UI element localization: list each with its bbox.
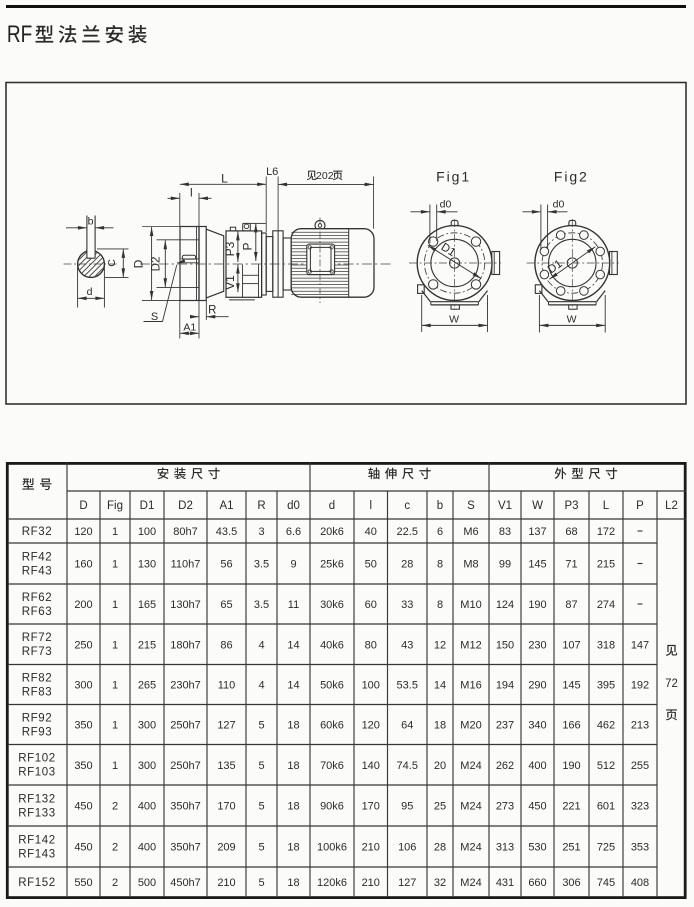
svg-text:M20: M20 xyxy=(460,720,481,732)
svg-text:S: S xyxy=(151,311,158,323)
svg-text:R: R xyxy=(208,304,216,316)
svg-text:M10: M10 xyxy=(460,599,481,611)
svg-text:90k6: 90k6 xyxy=(320,801,344,813)
svg-text:RF72: RF72 xyxy=(22,632,53,644)
svg-text:Fig1: Fig1 xyxy=(436,168,471,184)
svg-text:230: 230 xyxy=(528,639,546,651)
svg-text:400: 400 xyxy=(138,842,156,854)
svg-text:512: 512 xyxy=(597,760,615,772)
svg-text:M24: M24 xyxy=(460,877,481,889)
svg-text:166: 166 xyxy=(562,720,580,732)
svg-text:9: 9 xyxy=(290,559,296,571)
svg-text:RF93: RF93 xyxy=(22,726,53,738)
svg-text:25: 25 xyxy=(434,801,446,813)
svg-text:18: 18 xyxy=(287,842,299,854)
svg-text:250h7: 250h7 xyxy=(170,720,201,732)
svg-text:350h7: 350h7 xyxy=(170,801,201,813)
svg-text:80: 80 xyxy=(365,639,377,651)
svg-text:306: 306 xyxy=(562,877,580,889)
svg-text:230h7: 230h7 xyxy=(170,680,201,692)
svg-text:1: 1 xyxy=(112,526,118,538)
svg-text:500: 500 xyxy=(138,877,156,889)
svg-text:251: 251 xyxy=(562,842,580,854)
svg-text:11: 11 xyxy=(288,599,299,611)
svg-text:5: 5 xyxy=(258,720,264,732)
svg-text:RF: RF xyxy=(7,21,32,48)
svg-text:202: 202 xyxy=(316,170,334,182)
svg-text:RF73: RF73 xyxy=(22,646,53,658)
svg-text:265: 265 xyxy=(138,680,156,692)
svg-text:A1: A1 xyxy=(183,321,196,333)
svg-text:431: 431 xyxy=(496,877,514,889)
svg-text:450: 450 xyxy=(528,801,546,813)
svg-text:110h7: 110h7 xyxy=(171,559,201,571)
svg-text:A1: A1 xyxy=(219,500,233,512)
svg-text:64: 64 xyxy=(401,720,413,732)
svg-text:83: 83 xyxy=(499,526,511,538)
svg-text:6.6: 6.6 xyxy=(286,526,301,538)
svg-text:147: 147 xyxy=(631,639,649,651)
svg-text:145: 145 xyxy=(562,680,580,692)
svg-text:530: 530 xyxy=(528,842,546,854)
svg-text:95: 95 xyxy=(401,801,413,813)
svg-text:RF102: RF102 xyxy=(18,753,56,765)
svg-text:c: c xyxy=(404,500,410,512)
svg-text:RF152: RF152 xyxy=(18,877,56,889)
svg-text:D: D xyxy=(79,500,87,512)
svg-text:250: 250 xyxy=(74,639,92,651)
svg-text:160: 160 xyxy=(74,559,92,571)
svg-text:W: W xyxy=(532,500,543,512)
svg-text:32: 32 xyxy=(434,877,446,889)
svg-text:Fig2: Fig2 xyxy=(554,168,589,184)
svg-text:56: 56 xyxy=(220,559,232,571)
svg-text:165: 165 xyxy=(138,599,156,611)
svg-text:80h7: 80h7 xyxy=(173,526,197,538)
svg-text:20: 20 xyxy=(434,760,446,772)
svg-text:12: 12 xyxy=(434,639,446,651)
svg-text:M24: M24 xyxy=(460,760,481,772)
svg-text:110: 110 xyxy=(218,680,236,692)
svg-text:2: 2 xyxy=(112,877,118,889)
svg-text:190: 190 xyxy=(528,599,546,611)
svg-text:660: 660 xyxy=(528,877,546,889)
svg-text:127: 127 xyxy=(398,877,416,889)
svg-text:106: 106 xyxy=(398,842,416,854)
svg-text:18: 18 xyxy=(287,720,299,732)
svg-text:RF32: RF32 xyxy=(22,526,53,538)
svg-text:33: 33 xyxy=(401,599,413,611)
svg-text:l: l xyxy=(190,185,193,199)
svg-text:450h7: 450h7 xyxy=(170,877,201,889)
svg-text:d0: d0 xyxy=(287,500,300,512)
svg-text:RF42: RF42 xyxy=(22,551,53,563)
svg-text:1: 1 xyxy=(112,720,118,732)
svg-text:3.5: 3.5 xyxy=(254,599,269,611)
svg-text:RF103: RF103 xyxy=(18,767,56,779)
svg-text:210: 210 xyxy=(217,877,235,889)
svg-text:550: 550 xyxy=(74,877,92,889)
svg-text:30k6: 30k6 xyxy=(320,599,344,611)
svg-text:5: 5 xyxy=(258,760,264,772)
svg-text:209: 209 xyxy=(217,842,235,854)
svg-text:71: 71 xyxy=(565,559,577,571)
svg-text:192: 192 xyxy=(631,680,649,692)
svg-text:25k6: 25k6 xyxy=(320,559,344,571)
svg-text:RF142: RF142 xyxy=(18,834,56,846)
svg-text:273: 273 xyxy=(496,801,514,813)
svg-text:M24: M24 xyxy=(460,801,481,813)
svg-text:P: P xyxy=(240,242,254,250)
svg-text:262: 262 xyxy=(496,760,514,772)
svg-text:V1: V1 xyxy=(498,500,512,512)
svg-text:72: 72 xyxy=(665,678,678,690)
svg-text:b: b xyxy=(88,216,94,228)
svg-text:172: 172 xyxy=(597,526,615,538)
svg-text:400: 400 xyxy=(528,760,546,772)
svg-text:68: 68 xyxy=(565,526,577,538)
svg-text:14: 14 xyxy=(287,639,299,651)
svg-text:215: 215 xyxy=(597,559,615,571)
svg-text:RF143: RF143 xyxy=(18,848,56,860)
svg-text:5: 5 xyxy=(258,842,264,854)
svg-text:137: 137 xyxy=(528,526,546,538)
svg-text:53.5: 53.5 xyxy=(397,680,418,692)
svg-text:28: 28 xyxy=(434,842,446,854)
svg-text:3: 3 xyxy=(258,526,264,538)
svg-text:274: 274 xyxy=(597,599,615,611)
svg-text:350: 350 xyxy=(74,760,92,772)
svg-text:450: 450 xyxy=(74,842,92,854)
svg-text:M12: M12 xyxy=(460,639,481,651)
svg-text:L6: L6 xyxy=(266,166,278,178)
svg-text:255: 255 xyxy=(631,760,649,772)
svg-text:b: b xyxy=(437,500,443,512)
svg-text:100k6: 100k6 xyxy=(317,842,347,854)
svg-text:18: 18 xyxy=(287,801,299,813)
svg-text:RF133: RF133 xyxy=(18,807,56,819)
svg-text:300: 300 xyxy=(138,720,156,732)
svg-text:1: 1 xyxy=(112,680,118,692)
svg-text:d: d xyxy=(329,500,335,512)
svg-text:d0: d0 xyxy=(553,199,565,211)
svg-text:130h7: 130h7 xyxy=(170,599,201,611)
svg-text:V1: V1 xyxy=(223,275,237,290)
svg-text:D2: D2 xyxy=(178,500,193,512)
svg-text:RF62: RF62 xyxy=(22,592,53,604)
svg-text:l: l xyxy=(369,500,372,512)
svg-text:40: 40 xyxy=(365,526,377,538)
svg-text:210: 210 xyxy=(362,842,380,854)
svg-text:210: 210 xyxy=(362,877,380,889)
svg-text:313: 313 xyxy=(496,842,514,854)
svg-text:2: 2 xyxy=(112,801,118,813)
svg-text:190: 190 xyxy=(562,760,580,772)
svg-text:213: 213 xyxy=(631,720,649,732)
svg-text:145: 145 xyxy=(528,559,546,571)
svg-text:60: 60 xyxy=(365,599,377,611)
svg-text:300: 300 xyxy=(138,760,156,772)
svg-text:221: 221 xyxy=(562,801,580,813)
svg-text:462: 462 xyxy=(597,720,615,732)
svg-text:180h7: 180h7 xyxy=(170,639,201,651)
svg-text:745: 745 xyxy=(597,877,615,889)
svg-text:M6: M6 xyxy=(463,526,478,538)
svg-text:140: 140 xyxy=(362,760,380,772)
svg-text:d0: d0 xyxy=(440,199,452,211)
svg-text:M16: M16 xyxy=(460,680,481,692)
svg-text:8: 8 xyxy=(437,599,443,611)
svg-text:300: 300 xyxy=(74,680,92,692)
svg-text:R: R xyxy=(257,500,265,512)
svg-text:450: 450 xyxy=(74,801,92,813)
svg-text:4: 4 xyxy=(258,680,264,692)
svg-text:5: 5 xyxy=(258,877,264,889)
svg-text:Fig: Fig xyxy=(107,500,123,512)
svg-text:1: 1 xyxy=(112,639,118,651)
svg-text:5: 5 xyxy=(258,801,264,813)
svg-text:22.5: 22.5 xyxy=(397,526,418,538)
svg-text:353: 353 xyxy=(631,842,649,854)
svg-text:215: 215 xyxy=(138,639,156,651)
svg-text:W: W xyxy=(449,313,459,325)
svg-text:18: 18 xyxy=(434,720,446,732)
svg-text:50: 50 xyxy=(365,559,377,571)
svg-text:RF132: RF132 xyxy=(18,793,56,805)
svg-text:150: 150 xyxy=(496,639,514,651)
svg-text:100: 100 xyxy=(138,526,156,538)
svg-text:RF92: RF92 xyxy=(22,712,53,724)
svg-text:28: 28 xyxy=(401,559,413,571)
svg-text:65: 65 xyxy=(220,599,232,611)
svg-text:18: 18 xyxy=(287,877,299,889)
svg-text:L: L xyxy=(603,500,610,512)
svg-text:100: 100 xyxy=(362,680,380,692)
svg-text:RF43: RF43 xyxy=(22,565,53,577)
svg-text:d: d xyxy=(87,286,93,298)
svg-text:340: 340 xyxy=(528,720,546,732)
svg-text:170: 170 xyxy=(362,801,380,813)
svg-text:18: 18 xyxy=(287,760,299,772)
svg-text:14: 14 xyxy=(434,680,446,692)
svg-text:99: 99 xyxy=(499,559,511,571)
svg-text:124: 124 xyxy=(496,599,514,611)
svg-text:395: 395 xyxy=(597,680,615,692)
svg-text:120: 120 xyxy=(74,526,92,538)
svg-text:725: 725 xyxy=(597,842,615,854)
svg-text:290: 290 xyxy=(528,680,546,692)
svg-text:RF83: RF83 xyxy=(22,686,53,698)
svg-text:1: 1 xyxy=(112,559,118,571)
svg-text:L2: L2 xyxy=(665,500,678,512)
svg-text:20k6: 20k6 xyxy=(320,526,344,538)
svg-text:43.5: 43.5 xyxy=(216,526,237,538)
svg-text:14: 14 xyxy=(287,680,299,692)
svg-text:1: 1 xyxy=(112,599,118,611)
svg-text:W: W xyxy=(567,313,577,325)
svg-text:408: 408 xyxy=(631,877,649,889)
svg-text:127: 127 xyxy=(217,720,235,732)
svg-text:M24: M24 xyxy=(460,842,481,854)
svg-text:601: 601 xyxy=(597,801,615,813)
svg-text:120k6: 120k6 xyxy=(317,877,347,889)
svg-text:50k6: 50k6 xyxy=(320,680,344,692)
svg-text:C: C xyxy=(106,259,118,267)
svg-text:60k6: 60k6 xyxy=(320,720,344,732)
svg-text:43: 43 xyxy=(401,639,413,651)
svg-text:P3: P3 xyxy=(223,241,237,256)
svg-text:200: 200 xyxy=(74,599,92,611)
svg-text:6: 6 xyxy=(437,526,443,538)
svg-text:3.5: 3.5 xyxy=(254,559,269,571)
svg-text:323: 323 xyxy=(631,801,649,813)
svg-text:RF82: RF82 xyxy=(22,672,53,684)
svg-text:L: L xyxy=(221,171,228,185)
svg-text:130: 130 xyxy=(138,559,156,571)
svg-text:194: 194 xyxy=(496,680,514,692)
svg-text:D: D xyxy=(132,259,146,268)
svg-text:135: 135 xyxy=(217,760,235,772)
svg-text:S: S xyxy=(467,500,475,512)
svg-text:4: 4 xyxy=(258,639,264,651)
svg-text:1: 1 xyxy=(112,760,118,772)
svg-text:350: 350 xyxy=(74,720,92,732)
svg-text:120: 120 xyxy=(362,720,380,732)
svg-text:74.5: 74.5 xyxy=(397,760,418,772)
svg-text:RF63: RF63 xyxy=(22,606,53,618)
svg-text:170: 170 xyxy=(217,801,235,813)
svg-text:D1: D1 xyxy=(140,500,155,512)
svg-text:70k6: 70k6 xyxy=(320,760,344,772)
svg-text:250h7: 250h7 xyxy=(170,760,201,772)
svg-text:P3: P3 xyxy=(564,500,578,512)
svg-text:86: 86 xyxy=(220,639,232,651)
svg-text:350h7: 350h7 xyxy=(170,842,201,854)
svg-text:8: 8 xyxy=(437,559,443,571)
svg-text:400: 400 xyxy=(138,801,156,813)
svg-text:2: 2 xyxy=(112,842,118,854)
svg-text:D2: D2 xyxy=(150,257,162,272)
svg-text:40k6: 40k6 xyxy=(320,639,344,651)
svg-text:107: 107 xyxy=(562,639,580,651)
svg-text:237: 237 xyxy=(496,720,514,732)
svg-text:M8: M8 xyxy=(463,559,478,571)
svg-text:318: 318 xyxy=(597,639,615,651)
svg-text:87: 87 xyxy=(565,599,577,611)
svg-text:P: P xyxy=(636,500,644,512)
